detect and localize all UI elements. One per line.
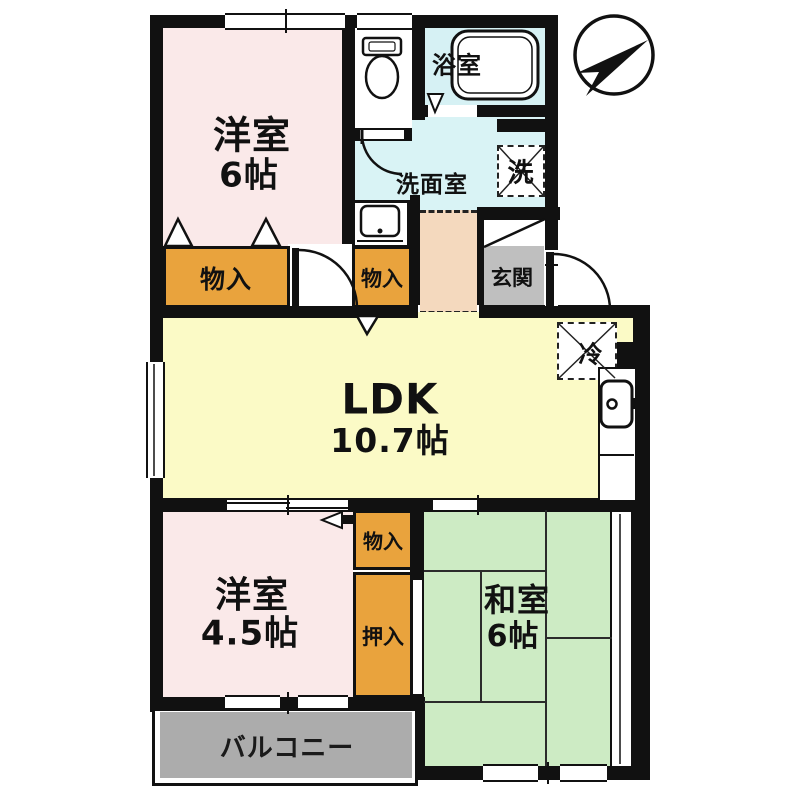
entrance-door-arc — [554, 254, 610, 310]
window — [357, 13, 412, 30]
closet-bedroom2-label: 物入 — [363, 526, 403, 555]
toilet-icon — [363, 38, 401, 98]
wall-segment — [477, 207, 560, 220]
washer-label: 洗 — [507, 153, 534, 190]
kitchen-counter — [598, 367, 635, 500]
closet-hall-label: 物入 — [361, 263, 403, 293]
ldk-size: 10.7帖 — [330, 414, 449, 462]
north-arrow-icon — [575, 16, 653, 96]
oshiire-label: 押入 — [362, 621, 404, 651]
wall-segment — [477, 212, 484, 305]
passage-opening — [433, 500, 478, 510]
washitsu-size: 6帖 — [487, 611, 540, 655]
balcony-label: バルコニー — [220, 728, 354, 765]
window — [225, 13, 345, 30]
entrance-door-opening — [545, 250, 558, 306]
door-opening — [360, 130, 404, 139]
floor-plan: 洋室 6帖 浴室 洗面室 洗 物入 物入 玄関 冷 LDK 10.7帖 洋室 4… — [0, 0, 800, 800]
fridge-label: 冷 — [579, 335, 604, 370]
washbasin-cabinet — [352, 200, 410, 248]
wall-segment — [497, 119, 545, 132]
hallway-floor — [420, 210, 477, 314]
door-opening — [428, 105, 477, 117]
genkan-step-line — [484, 219, 545, 247]
bath-label: 浴室 — [432, 46, 482, 81]
bedroom1-size: 6帖 — [219, 148, 279, 197]
wall-segment — [633, 307, 650, 778]
bedroom2-size: 4.5帖 — [201, 606, 299, 655]
closet-bedroom1-label: 物入 — [200, 260, 252, 296]
genkan-label: 玄関 — [491, 262, 533, 292]
window — [560, 764, 607, 782]
washroom-label: 洗面室 — [396, 165, 468, 199]
window — [146, 362, 165, 478]
wall-segment — [479, 305, 650, 318]
door-opening — [288, 244, 352, 306]
sliding-door-opening — [227, 500, 348, 510]
window — [610, 512, 633, 766]
window — [483, 764, 538, 782]
